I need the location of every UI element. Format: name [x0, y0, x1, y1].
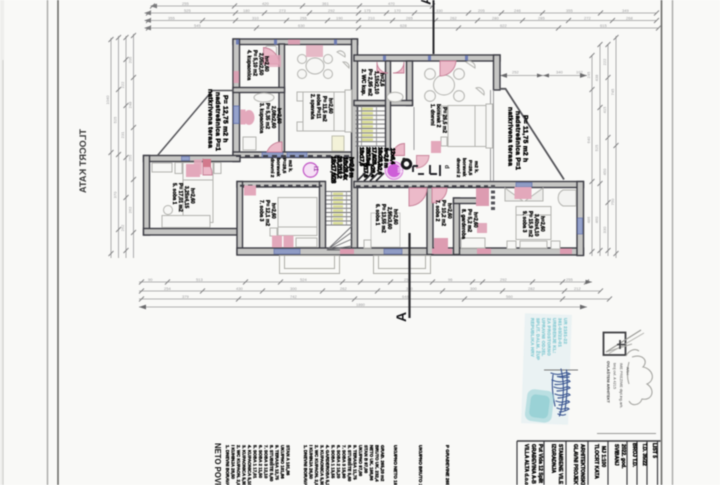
svg-text:7. soba 2: 7. soba 2 — [434, 200, 440, 222]
svg-text:STAMBENE VILE: STAMBENE VILE — [557, 444, 563, 485]
svg-text:ARH: ARH — [626, 367, 630, 375]
svg-text:UREĐENJE KL:: UREĐENJE KL: — [552, 318, 557, 354]
svg-text:262: 262 — [450, 16, 457, 21]
svg-text:262: 262 — [120, 224, 125, 231]
svg-text:525: 525 — [184, 8, 191, 13]
svg-text:222: 222 — [120, 81, 125, 88]
svg-text:7. SOBA 3 15,90: 7. SOBA 3 15,90 — [342, 445, 347, 479]
svg-text:12x6,4: 12x6,4 — [389, 148, 395, 165]
svg-text:soba P=11: soba P=11 — [315, 94, 321, 119]
svg-text:GRAĐEVINA A-B: GRAĐEVINA A-B — [530, 444, 536, 484]
svg-text:524: 524 — [300, 277, 307, 282]
svg-text:REPUBLIKA HRV: REPUBLIKA HRV — [530, 318, 535, 357]
svg-text:450: 450 — [602, 168, 607, 175]
svg-text:P= 11,5 m2: P= 11,5 m2 — [321, 96, 327, 122]
svg-text:P= 5,2 m2: P= 5,2 m2 — [466, 209, 472, 232]
svg-text:TLOCRT KATA: TLOCRT KATA — [78, 129, 88, 193]
svg-text:262: 262 — [340, 286, 347, 291]
svg-text:h=2,6: h=2,6 — [379, 73, 385, 87]
svg-text:16x28,4x: 16x28,4x — [342, 157, 348, 181]
svg-text:IZGRADNJA: IZGRADNJA — [550, 444, 556, 474]
svg-text:T.D. 35/22: T.D. 35/22 — [641, 443, 647, 466]
svg-text:246: 246 — [514, 8, 521, 13]
svg-text:205: 205 — [478, 8, 485, 13]
svg-text:255: 255 — [182, 1, 189, 6]
svg-text:GRAĐ. 265,20 m2: GRAĐ. 265,20 m2 — [380, 445, 385, 482]
svg-text:615: 615 — [600, 23, 607, 28]
svg-text:255: 255 — [566, 277, 573, 282]
svg-text:P= 12,75 m2 h: P= 12,75 m2 h — [222, 95, 229, 143]
svg-text:90: 90 — [148, 277, 153, 282]
svg-text:7. soba 3: 7. soba 3 — [258, 200, 264, 222]
svg-text:9. TERASA 11,75: 9. TERASA 11,75 — [353, 445, 358, 480]
svg-text:P= 17,01 m2: P= 17,01 m2 — [177, 183, 183, 212]
svg-text:h=2,60: h=2,60 — [263, 56, 269, 72]
svg-text:P= 13,55 m2: P= 13,55 m2 — [380, 204, 386, 233]
svg-text:h=2,60: h=2,60 — [392, 209, 398, 225]
svg-text:I KUHINJA 26,50: I KUHINJA 26,50 — [309, 445, 314, 480]
svg-text:640: 640 — [586, 136, 591, 143]
svg-text:285: 285 — [538, 16, 545, 21]
svg-text:1. dnevni: 1. dnevni — [429, 104, 435, 126]
svg-text:648: 648 — [402, 294, 409, 299]
svg-text:ZA PROSTORNO: ZA PROSTORNO — [547, 318, 552, 356]
svg-text:m2 k.: m2 k. — [287, 160, 293, 172]
svg-text:628: 628 — [400, 23, 407, 28]
svg-text:8. STUBIŠTE 5,60: 8. STUBIŠTE 5,60 — [269, 445, 274, 482]
svg-text:m2 k.: m2 k. — [473, 161, 479, 173]
svg-text:nadstrešnica P=1: nadstrešnica P=1 — [514, 111, 521, 170]
svg-text:2,95x3,60: 2,95x3,60 — [386, 207, 392, 229]
svg-text:STAN A 101,86: STAN A 101,86 — [286, 445, 291, 476]
svg-text:525: 525 — [113, 116, 118, 123]
svg-text:BRUTO UK. 232,4: BRUTO UK. 232,4 — [375, 445, 380, 482]
svg-text:2. WC kup.: 2. WC kup. — [360, 69, 366, 96]
svg-text:622: 622 — [500, 23, 507, 28]
svg-text:P= 5,10 m2: P= 5,10 m2 — [252, 50, 258, 76]
svg-text:355: 355 — [566, 8, 573, 13]
svg-text:745: 745 — [610, 88, 615, 95]
svg-text:248: 248 — [128, 101, 133, 108]
svg-text:102: 102 — [576, 70, 583, 75]
svg-text:6. SOBA 2 10,20: 6. SOBA 2 10,20 — [336, 445, 341, 479]
svg-text:ARHITEKTONSKI: ARHITEKTONSKI — [579, 444, 585, 485]
svg-text:UR 2181-22: UR 2181-22 — [563, 318, 568, 344]
svg-text:P= 12,1 m2: P= 12,1 m2 — [264, 200, 270, 226]
svg-text:P= 5,35 m2: P= 5,35 m2 — [264, 103, 270, 129]
svg-text:268: 268 — [626, 16, 633, 21]
svg-text:2. WC KUPAON. 2,95: 2. WC KUPAON. 2,95 — [236, 445, 241, 485]
svg-text:nadstrešnica P=1: nadstrešnica P=1 — [214, 92, 221, 151]
svg-text:180: 180 — [243, 8, 250, 13]
svg-text:P= 26,5 m2: P= 26,5 m2 — [441, 107, 447, 133]
svg-text:i1: i1 — [312, 166, 319, 172]
svg-text:28,2/18,2: 28,2/18,2 — [336, 156, 342, 179]
svg-text:330: 330 — [602, 226, 607, 233]
svg-text:M: M — [396, 167, 403, 173]
svg-text:P=28,5: P=28,5 — [467, 160, 473, 176]
svg-text:262: 262 — [128, 206, 133, 213]
svg-text:175: 175 — [364, 8, 371, 13]
svg-text:2. WC KUPAON. 2,95: 2. WC KUPAON. 2,95 — [314, 445, 319, 485]
svg-text:361: 361 — [322, 1, 329, 6]
svg-text:I KUHINJA 28,50: I KUHINJA 28,50 — [231, 445, 236, 480]
svg-text:4. KUPAONICA 5,10: 4. KUPAONICA 5,10 — [247, 445, 252, 485]
svg-text:2,08x2,60: 2,08x2,60 — [270, 106, 276, 128]
svg-text:P= 2,95 m2: P= 2,95 m2 — [367, 69, 373, 96]
svg-text:486: 486 — [586, 216, 591, 223]
svg-text:UKUPNO BRUTO 232,40: UKUPNO BRUTO 232,40 — [418, 445, 423, 485]
svg-text:STAN B 97,00: STAN B 97,00 — [364, 445, 369, 474]
svg-text:P= 11,75 m2 h: P= 11,75 m2 h — [522, 115, 529, 162]
svg-text:P= 15,9 m2: P= 15,9 m2 — [527, 211, 533, 237]
svg-text:8. garderoba: 8. garderoba — [460, 209, 466, 239]
svg-text:190: 190 — [336, 16, 343, 21]
svg-text:205: 205 — [128, 56, 133, 63]
svg-text:272: 272 — [584, 16, 591, 21]
svg-text:h=2,60: h=2,60 — [276, 108, 282, 124]
svg-text:280: 280 — [492, 16, 499, 21]
svg-text:560: 560 — [506, 294, 513, 299]
svg-text:SPLIT. DALM. ŽUP: SPLIT. DALM. ŽUP — [536, 318, 541, 360]
svg-text:370: 370 — [113, 191, 118, 198]
svg-text:310: 310 — [252, 16, 259, 21]
svg-text:212: 212 — [574, 286, 581, 291]
svg-text:1040: 1040 — [105, 95, 110, 105]
svg-text:525: 525 — [594, 144, 599, 151]
svg-text:255: 255 — [300, 16, 307, 21]
svg-text:NETO POVRŠINA: NETO POVRŠINA — [213, 443, 222, 485]
svg-text:4. kupaonica: 4. kupaonica — [246, 50, 252, 81]
svg-text:P= 10,2 m2: P= 10,2 m2 — [440, 200, 446, 226]
svg-text:h=2,6 m: h=2,6 m — [348, 157, 354, 177]
svg-text:BROJ T.D.: BROJ T.D. — [631, 443, 637, 468]
svg-text:9. TERASA 12,75: 9. TERASA 12,75 — [275, 445, 280, 481]
svg-text:2,05x2,50: 2,05x2,50 — [258, 53, 264, 75]
svg-text:361-03/22-01: 361-03/22-01 — [558, 318, 563, 347]
svg-text:96: 96 — [448, 277, 453, 282]
svg-text:h=2,6 m: h=2,6 m — [383, 148, 389, 168]
svg-text:17,6/28: 17,6/28 — [371, 147, 377, 165]
svg-text:470: 470 — [388, 1, 395, 6]
svg-text:h=2,60: h=2,60 — [189, 188, 195, 204]
svg-text:3,40x4,10: 3,40x4,10 — [533, 214, 539, 236]
svg-text:8. STUBIŠTE 5,60: 8. STUBIŠTE 5,60 — [347, 445, 352, 482]
svg-text:UKUPNO 101,86: UKUPNO 101,86 — [280, 445, 285, 479]
svg-text:2022. god.: 2022. god. — [620, 444, 626, 469]
svg-text:460: 460 — [594, 216, 599, 223]
svg-text:LIST 5: LIST 5 — [651, 443, 657, 458]
svg-text:TLOCRT KATA: TLOCRT KATA — [593, 444, 599, 479]
svg-text:NETO UK. 198,86: NETO UK. 198,86 — [369, 445, 374, 481]
svg-text:6. soba 1: 6. soba 1 — [374, 204, 380, 226]
svg-text:255: 255 — [128, 154, 133, 161]
svg-text:4. GARDEROBA 5,20: 4. GARDEROBA 5,20 — [325, 445, 330, 485]
svg-text:300: 300 — [470, 286, 477, 291]
svg-text:Put Vida 12 Split: Put Vida 12 Split — [537, 444, 543, 483]
svg-text:UKUPNO NETO 198,86: UKUPNO NETO 198,86 — [393, 445, 398, 485]
svg-text:5. soba 1: 5. soba 1 — [171, 183, 177, 205]
svg-text:P=28,5: P=28,5 — [281, 158, 287, 174]
svg-text:3,25x4,15: 3,25x4,15 — [183, 186, 189, 208]
svg-text:natkrivena terasa: natkrivena terasa — [207, 89, 214, 148]
svg-text:3. kupaonica: 3. kupaonica — [258, 103, 264, 134]
svg-text:18x17,6/28: 18x17,6/28 — [330, 156, 336, 184]
svg-text:273: 273 — [279, 8, 286, 13]
svg-text:210: 210 — [368, 16, 375, 21]
svg-text:282: 282 — [528, 286, 535, 291]
svg-text:boravak: boravak — [275, 158, 281, 177]
svg-text:415: 415 — [602, 106, 607, 113]
svg-text:438: 438 — [594, 74, 599, 81]
svg-text:boravak 2: boravak 2 — [435, 104, 441, 128]
svg-text:h=2,60: h=2,60 — [270, 203, 276, 219]
svg-text:3. KUPAONICA 5,35: 3. KUPAONICA 5,35 — [242, 445, 247, 485]
svg-text:5. SOBA 1 13,55: 5. SOBA 1 13,55 — [331, 445, 336, 479]
svg-text:300: 300 — [290, 286, 297, 291]
svg-text:750: 750 — [610, 198, 615, 205]
svg-text:h=2,60: h=2,60 — [539, 216, 545, 232]
svg-text:UPRAVNI ODJEL: UPRAVNI ODJEL — [541, 318, 546, 357]
svg-text:292: 292 — [500, 277, 507, 282]
svg-text:OVLAŠTENI ARHITEKT: OVLAŠTENI ARHITEKT — [606, 361, 611, 404]
svg-text:2. spavaća: 2. spavaća — [309, 94, 315, 120]
svg-text:222: 222 — [602, 58, 607, 65]
svg-text:430: 430 — [236, 286, 243, 291]
svg-text:3. KUPAONICA 5,35: 3. KUPAONICA 5,35 — [320, 445, 325, 485]
svg-text:170: 170 — [394, 8, 401, 13]
svg-text:231: 231 — [120, 131, 125, 138]
svg-text:379: 379 — [182, 294, 189, 299]
svg-text:h=2,60: h=2,60 — [472, 212, 478, 228]
svg-text:245: 245 — [586, 71, 591, 78]
svg-text:VILLA ALTA d.o.o.: VILLA ALTA d.o.o. — [523, 444, 529, 485]
svg-text:349: 349 — [622, 8, 629, 13]
svg-text:355: 355 — [168, 16, 175, 21]
svg-text:boravak: boravak — [461, 158, 467, 177]
svg-text:630: 630 — [298, 23, 305, 28]
svg-text:UKUPNO 97,00: UKUPNO 97,00 — [358, 445, 363, 477]
svg-text:1860: 1860 — [356, 302, 366, 307]
svg-text:5. SOBA 1 17,01: 5. SOBA 1 17,01 — [253, 445, 258, 479]
svg-text:513: 513 — [196, 277, 203, 282]
svg-text:6. SOBA 2 11,50: 6. SOBA 2 11,50 — [258, 445, 263, 479]
svg-text:1,15x2,10: 1,15x2,10 — [373, 71, 379, 94]
svg-text:SVIBANJ: SVIBANJ — [613, 444, 619, 466]
svg-text:P GRAĐEVINE 265,20: P GRAĐEVINE 265,20 — [445, 445, 450, 485]
svg-text:IME PREZIME dipl.ing.arh.: IME PREZIME dipl.ing.arh. — [619, 363, 623, 408]
svg-text:1. DNEVNI BORAVAK: 1. DNEVNI BORAVAK — [225, 445, 230, 485]
svg-text:9. soba 3: 9. soba 3 — [521, 211, 527, 233]
svg-text:GLAVNI PROJEKT: GLAVNI PROJEKT — [572, 444, 578, 485]
svg-text:dnevni 2: dnevni 2 — [455, 158, 461, 178]
svg-text:254: 254 — [164, 286, 171, 291]
svg-text:MJ 1:100: MJ 1:100 — [600, 446, 606, 467]
svg-text:545: 545 — [194, 23, 201, 28]
svg-text:742: 742 — [290, 294, 297, 299]
svg-text:330: 330 — [436, 8, 443, 13]
svg-text:252: 252 — [512, 70, 519, 75]
svg-text:dnevni 2: dnevni 2 — [269, 158, 275, 178]
svg-text:340: 340 — [556, 70, 563, 75]
svg-text:A: A — [418, 0, 434, 5]
svg-text:7. SOBA 3 12,10: 7. SOBA 3 12,10 — [264, 445, 269, 479]
svg-text:h=2,60: h=2,60 — [446, 203, 452, 219]
svg-text:1. DNEVNI BORAVAK: 1. DNEVNI BORAVAK — [303, 445, 308, 485]
svg-text:natkrivena terasa: natkrivena terasa — [507, 107, 514, 166]
svg-text:d: d — [443, 165, 449, 169]
svg-text:broj ovl. A 4215: broj ovl. A 4215 — [613, 363, 617, 389]
svg-text:292: 292 — [328, 8, 335, 13]
svg-text:420: 420 — [262, 1, 269, 6]
svg-text:h=2,60: h=2,60 — [327, 98, 333, 114]
svg-text:A: A — [393, 312, 409, 322]
svg-text:265: 265 — [406, 16, 413, 21]
